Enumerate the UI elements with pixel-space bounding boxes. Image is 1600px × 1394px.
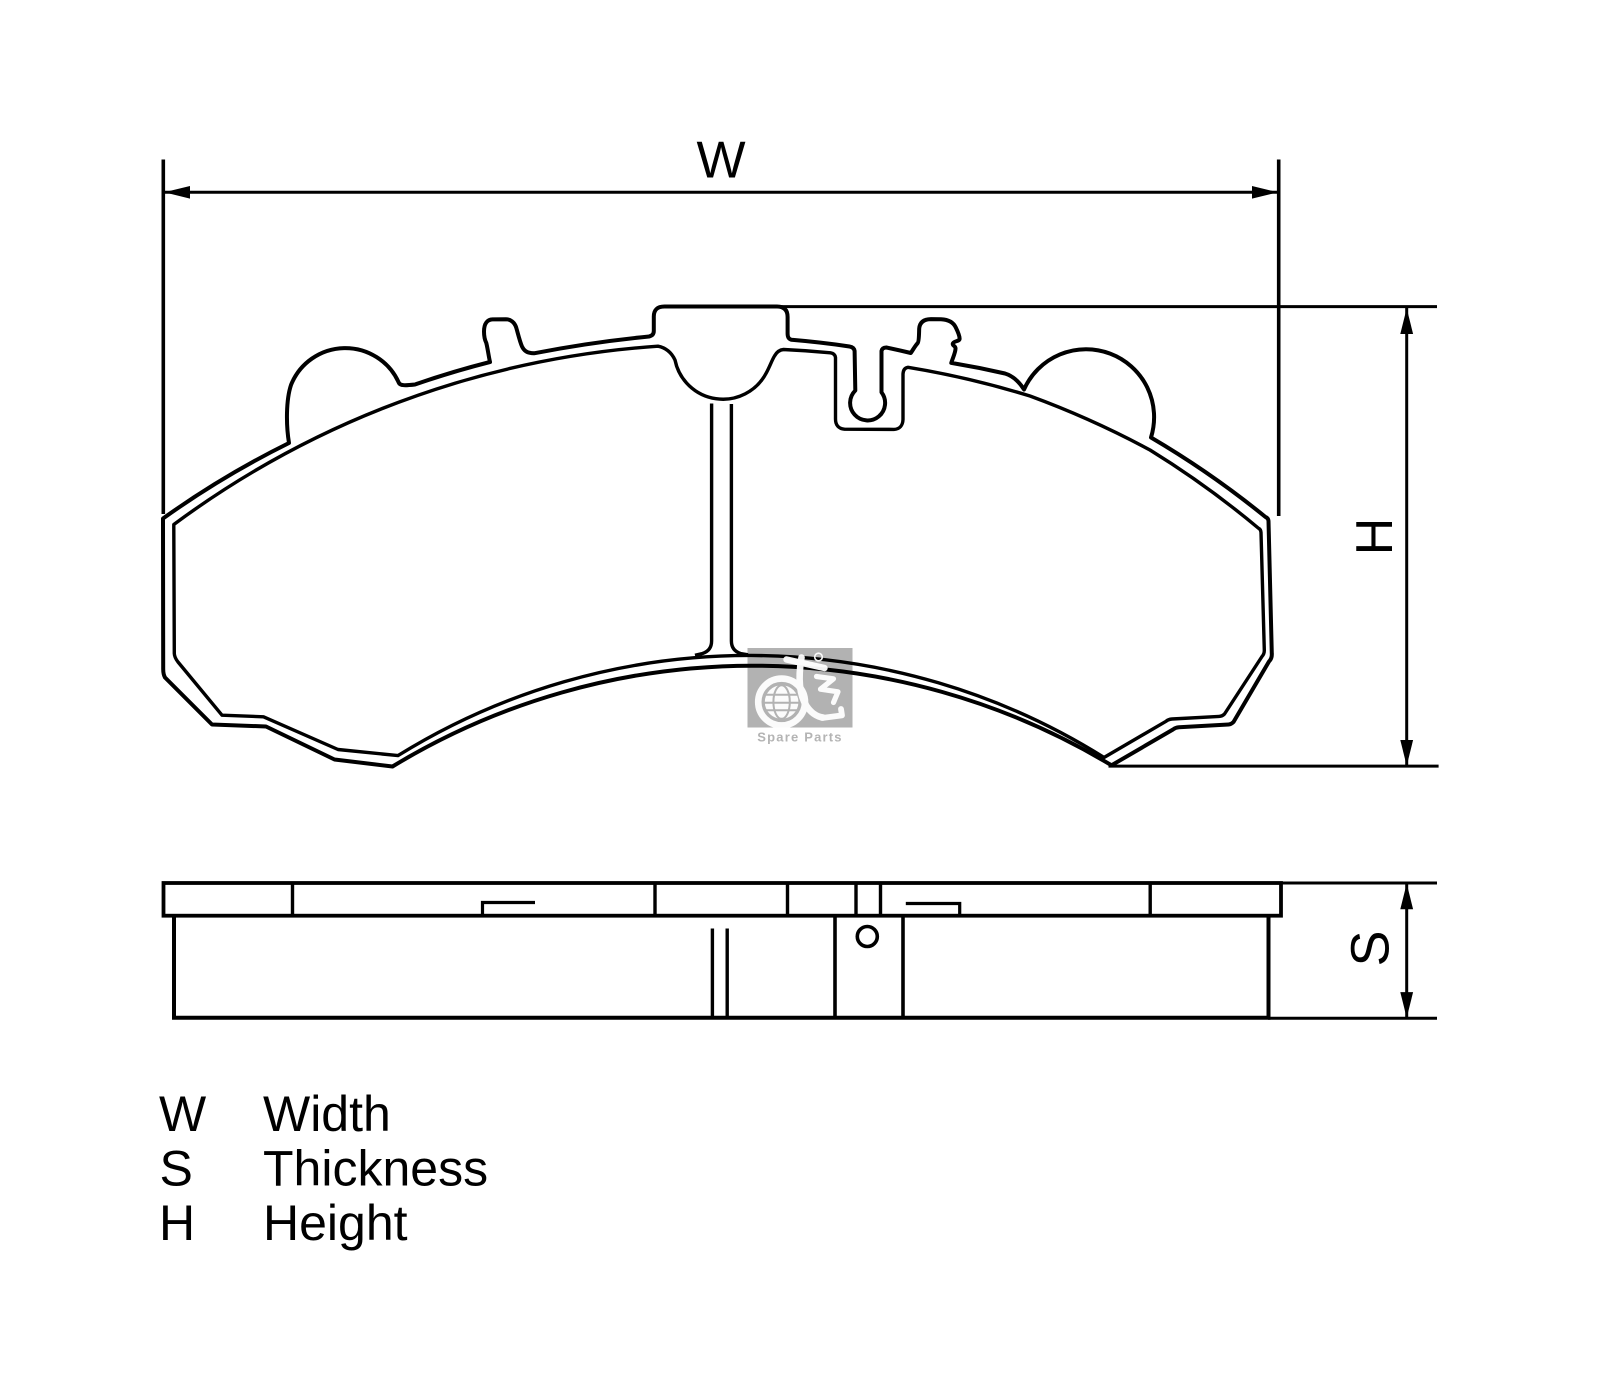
svg-text:Width: Width [263,1086,391,1142]
svg-text:W: W [159,1086,207,1142]
svg-text:H: H [1346,518,1404,556]
svg-text:S: S [160,1141,193,1197]
svg-text:Height: Height [263,1195,408,1251]
svg-text:Spare Parts: Spare Parts [757,730,842,745]
svg-text:H: H [159,1195,195,1251]
svg-text:W: W [696,132,745,190]
svg-text:S: S [1340,930,1400,966]
svg-text:Thickness: Thickness [263,1141,488,1197]
